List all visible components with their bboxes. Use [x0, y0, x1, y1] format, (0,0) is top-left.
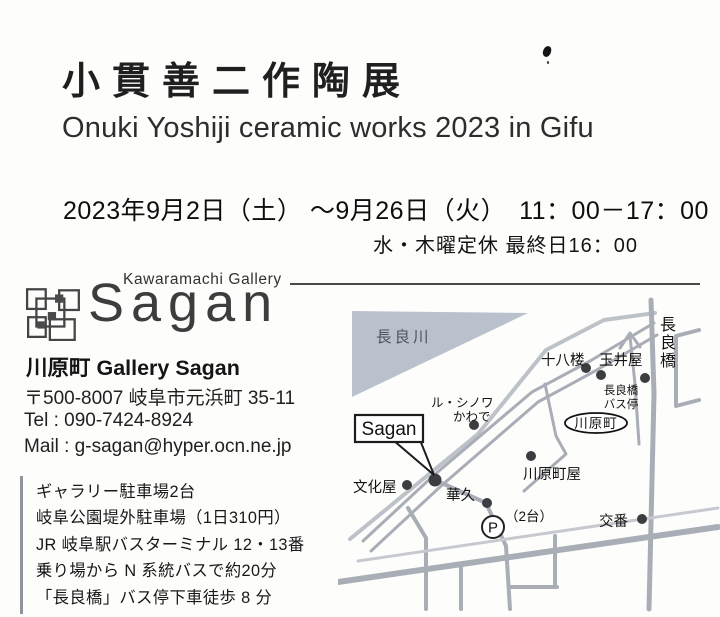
bridge-name-vertical: 長 良 橋 [660, 316, 676, 370]
parking-p-label: P [488, 520, 498, 537]
ink-smudge [542, 45, 552, 57]
exhibition-title-english: Onuki Yoshiji ceramic works 2023 in Gifu [62, 112, 594, 145]
le-chinois-label-line2: かわで [453, 410, 491, 424]
access-line-park-lot: 岐阜公園堤外駐車場（1日310円） [36, 505, 305, 531]
busstop-label-line2: バス停 [604, 397, 639, 411]
exhibition-title-japanese: 小貫善二作陶展 [62, 50, 412, 105]
gallery-address: 〒500-8007 岐阜市元浜町 35-11 [24, 383, 295, 410]
left-side-street [408, 508, 426, 609]
kawaramachiya-label: 川原町屋 [523, 467, 581, 483]
hanakyu-dot [482, 498, 492, 508]
logo-sagan-wordmark: Sagan [88, 276, 279, 330]
gallery-name: 川原町 Gallery Sagan [26, 351, 240, 382]
ink-speck [547, 61, 549, 64]
tamaiya-label: 玉井屋 [599, 352, 643, 369]
kawaramachi-oval: 川原町 [565, 413, 627, 433]
bridge-char-2: 良 [660, 334, 676, 352]
nagara-river-shape [352, 311, 528, 397]
juhachiro-label: 十八楼 [541, 352, 585, 369]
sagan-callout: Sagan [355, 415, 434, 475]
hanakyu-label: 華久 [446, 487, 475, 504]
sagan-callout-label: Sagan [362, 419, 417, 440]
gallery-email: Mail : g-sagan@hyper.ocn.ne.jp [24, 436, 292, 458]
nagarabashi-road [649, 300, 654, 609]
gallery-phone: Tel : 090-7424-8924 [24, 410, 193, 432]
exhibition-dates: 2023年9月2日（土） ～9月26日（火） 11：00－17：00 [63, 191, 709, 227]
sagan-callout-tail [393, 440, 434, 475]
busstop-label-line1: 長良橋 [604, 383, 639, 397]
closed-days-note: 水・木曜定休 最終日16：00 [373, 229, 638, 258]
bridge-char-1: 長 [660, 316, 676, 334]
le-chinois-label-line1: ル・シノワ [431, 396, 494, 410]
bottom-block-streets [510, 536, 557, 587]
kawaramachi-oval-label: 川原町 [574, 416, 618, 431]
bridge-structure [676, 330, 699, 406]
access-info-box: ギャラリー駐車場2台 岐阜公園堤外駐車場（1日310円） JR 岐阜駅バスターミ… [20, 476, 305, 614]
tamaiya-dot [596, 370, 606, 380]
bridge-char-3: 橋 [660, 352, 676, 370]
parking-count-label: （2台） [505, 509, 553, 524]
access-line-parking: ギャラリー駐車場2台 [36, 479, 305, 505]
access-line-bus-terminal: JR 岐阜駅バスターミナル 12・13番 [36, 532, 305, 558]
busstop-dot [640, 373, 650, 383]
river-label: 長良川 [376, 328, 432, 346]
sagan-squares-logo-icon [25, 281, 83, 341]
bunkaya-label: 文化屋 [353, 479, 397, 496]
flyer-page: 小貫善二作陶展 Onuki Yoshiji ceramic works 2023… [0, 0, 720, 617]
access-line-bus-route: 乗り場から N 系統バスで約20分 [36, 558, 305, 584]
kawaramachiya-dot [526, 451, 536, 461]
access-map: 長良川 [338, 284, 720, 617]
koban-label: 交番 [599, 512, 628, 530]
sagan-location-dot [429, 474, 442, 487]
bunkaya-dot [402, 480, 412, 490]
koban-dot [637, 514, 647, 524]
access-line-bus-stop: 「長良橋」バス停下車徒歩 8 分 [36, 585, 305, 611]
